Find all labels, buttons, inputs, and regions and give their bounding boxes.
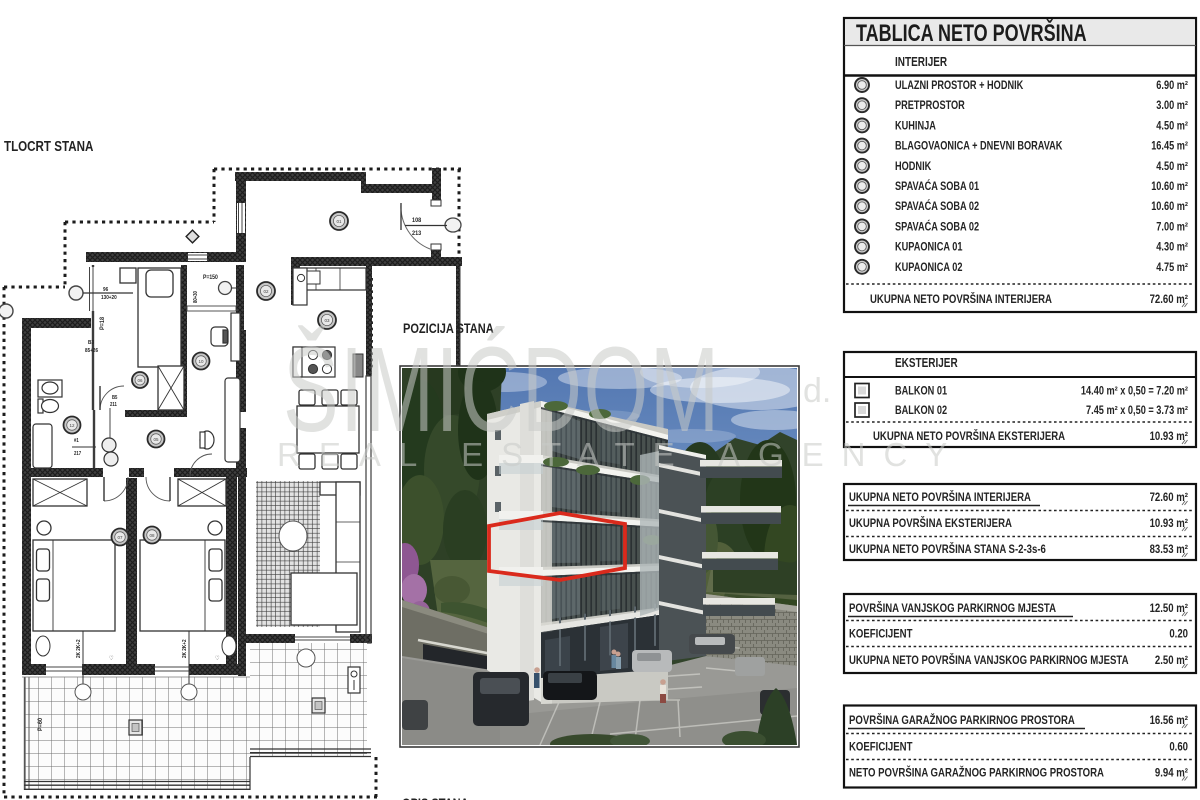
svg-text:d.: d.	[803, 372, 831, 410]
svg-text:12: 12	[69, 423, 75, 428]
svg-text:2.50 m²: 2.50 m²	[1155, 654, 1188, 667]
svg-text:0.60: 0.60	[1169, 741, 1188, 754]
svg-text:10.60 m²: 10.60 m²	[1151, 181, 1188, 193]
svg-text:4.30 m²: 4.30 m²	[1156, 242, 1188, 254]
svg-text:6.90 m²: 6.90 m²	[1156, 80, 1188, 92]
svg-text:KUPAONICA 02: KUPAONICA 02	[895, 262, 963, 274]
svg-text:10.93 m²: 10.93 m²	[1150, 430, 1189, 443]
svg-text:3.00 m²: 3.00 m²	[1156, 100, 1188, 112]
svg-text:EKSTERIJER: EKSTERIJER	[895, 357, 958, 370]
svg-text:85+26: 85+26	[85, 348, 98, 354]
svg-text:PRETPROSTOR: PRETPROSTOR	[895, 100, 965, 112]
svg-text:4.75 m²: 4.75 m²	[1156, 262, 1188, 274]
svg-text:BALKON 02: BALKON 02	[895, 405, 947, 417]
svg-text:16.45 m²: 16.45 m²	[1151, 141, 1188, 153]
svg-text:SPAVAĆA SOBA 01: SPAVAĆA SOBA 01	[895, 179, 979, 193]
svg-text:16.56 m²: 16.56 m²	[1150, 714, 1189, 727]
svg-text:UKUPNA NETO POVRŠINA INTERIJER: UKUPNA NETO POVRŠINA INTERIJERA	[849, 490, 1031, 504]
svg-text:NETO POVRŠINA GARAŽNOG PARKIRN: NETO POVRŠINA GARAŽNOG PARKIRNOG PROSTOR…	[849, 765, 1104, 779]
svg-text:01: 01	[336, 219, 342, 224]
svg-text:4.50 m²: 4.50 m²	[1156, 121, 1188, 133]
svg-text:P=60: P=60	[38, 717, 44, 731]
svg-text:96: 96	[103, 287, 108, 293]
svg-text:ULAZNI PROSTOR + HODNIK: ULAZNI PROSTOR + HODNIK	[895, 80, 1024, 92]
svg-text:TABLICA NETO POVRŠINA: TABLICA NETO POVRŠINA	[856, 18, 1087, 46]
svg-text:12.50 m²: 12.50 m²	[1150, 602, 1189, 615]
svg-text:06: 06	[137, 378, 143, 383]
svg-text:♡: ♡	[215, 655, 220, 663]
svg-text:POVRŠINA VANJSKOG PARKIRNOG MJ: POVRŠINA VANJSKOG PARKIRNOG MJESTA	[849, 601, 1056, 615]
svg-text:KUHINJA: KUHINJA	[895, 121, 936, 133]
svg-text:14.40 m² x 0,50 = 7.20 m²: 14.40 m² x 0,50 = 7.20 m²	[1081, 386, 1189, 398]
svg-text:07: 07	[117, 535, 123, 540]
svg-text:05: 05	[153, 437, 159, 442]
svg-text:08: 08	[149, 533, 155, 538]
svg-text:72.60 m²: 72.60 m²	[1150, 491, 1189, 504]
svg-text:B3: B3	[88, 340, 94, 346]
svg-text:80+30: 80+30	[193, 291, 198, 303]
svg-text:KOEFICIJENT: KOEFICIJENT	[849, 741, 913, 754]
svg-text:7.00 m²: 7.00 m²	[1156, 222, 1188, 234]
svg-text:10.93 m²: 10.93 m²	[1150, 517, 1189, 530]
svg-text:217: 217	[74, 451, 81, 456]
svg-text:BLAGOVAONICA + DNEVNI BORAVAK: BLAGOVAONICA + DNEVNI BORAVAK	[895, 141, 1063, 153]
svg-text:P=150: P=150	[203, 275, 218, 281]
svg-text:OPIS STANA: OPIS STANA	[402, 796, 469, 800]
svg-text:211: 211	[110, 402, 117, 407]
svg-text:UKUPNA NETO POVRŠINA STANA S-2: UKUPNA NETO POVRŠINA STANA S-2-3s-6	[849, 542, 1046, 556]
svg-text:213: 213	[412, 231, 422, 237]
svg-text:UKUPNA NETO POVRŠINA VANJSKOG: UKUPNA NETO POVRŠINA VANJSKOG PARKIRNOG …	[849, 653, 1129, 667]
svg-text:83.53 m²: 83.53 m²	[1150, 543, 1189, 556]
svg-text:♡: ♡	[109, 655, 114, 663]
svg-text:10: 10	[198, 359, 204, 364]
svg-text:9.94 m²: 9.94 m²	[1155, 767, 1188, 780]
svg-text:2K 2K+2: 2K 2K+2	[76, 639, 82, 658]
svg-text:SPAVAĆA SOBA 02: SPAVAĆA SOBA 02	[895, 199, 979, 213]
svg-text:TLOCRT STANA: TLOCRT STANA	[4, 138, 94, 155]
svg-text:UKUPNA NETO POVRŠINA INTERIJER: UKUPNA NETO POVRŠINA INTERIJERA	[870, 292, 1052, 306]
svg-text:UKUPNA POVRŠINA EKSTERIJERA: UKUPNA POVRŠINA EKSTERIJERA	[849, 516, 1012, 530]
svg-text:HODNIK: HODNIK	[895, 161, 932, 173]
svg-text:POVRŠINA GARAŽNOG PARKIRNOG PR: POVRŠINA GARAŽNOG PARKIRNOG PROSTORA	[849, 713, 1075, 727]
svg-text:4.50 m²: 4.50 m²	[1156, 161, 1188, 173]
svg-text:#1: #1	[74, 438, 79, 443]
svg-text:SPAVAĆA SOBA 02: SPAVAĆA SOBA 02	[895, 219, 979, 233]
svg-text:7.45 m² x 0,50 = 3.73 m²: 7.45 m² x 0,50 = 3.73 m²	[1086, 405, 1188, 417]
svg-text:KOEFICIJENT: KOEFICIJENT	[849, 628, 913, 641]
svg-text:INTERIJER: INTERIJER	[895, 56, 947, 69]
svg-text:0.20: 0.20	[1169, 628, 1188, 641]
svg-text:72.60 m²: 72.60 m²	[1150, 293, 1189, 306]
svg-text:REAL ESTATE AGENCY: REAL ESTATE AGENCY	[277, 436, 965, 473]
svg-text:108: 108	[412, 218, 422, 224]
svg-text:BALKON 01: BALKON 01	[895, 386, 947, 398]
svg-text:10.60 m²: 10.60 m²	[1151, 201, 1188, 213]
svg-text:KUPAONICA 01: KUPAONICA 01	[895, 242, 963, 254]
svg-text:2K 2K+2: 2K 2K+2	[182, 639, 188, 658]
svg-text:B5: B5	[112, 395, 118, 400]
svg-text:P=18: P=18	[100, 316, 106, 330]
svg-text:130+20: 130+20	[101, 295, 117, 301]
svg-text:02: 02	[263, 289, 269, 294]
